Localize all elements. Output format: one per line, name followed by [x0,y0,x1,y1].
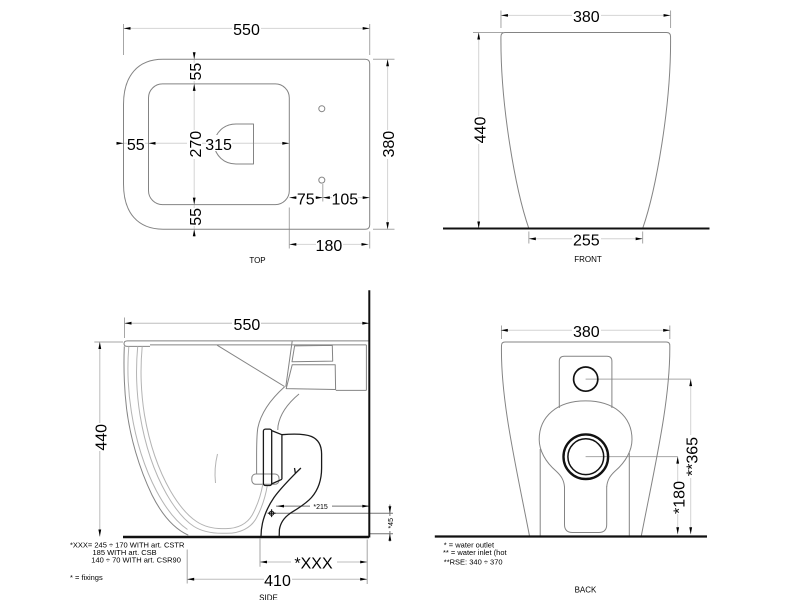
svg-text:55: 55 [188,208,205,226]
svg-text:270: 270 [188,131,205,158]
svg-text:BACK: BACK [575,586,597,595]
svg-text:105: 105 [331,191,358,208]
svg-text:*XXX: *XXX [294,556,333,573]
svg-text:**365: **365 [684,437,701,476]
svg-text:550: 550 [234,317,261,334]
svg-text:SIDE: SIDE [259,594,278,600]
svg-text:550: 550 [233,22,260,39]
svg-text:*45: *45 [388,518,395,529]
svg-text:**RSE: 340 ÷ 370: **RSE: 340 ÷ 370 [444,558,503,567]
svg-text:410: 410 [264,573,291,590]
svg-text:55: 55 [188,63,205,81]
svg-text:* = fixings: * = fixings [70,573,103,582]
svg-text:440: 440 [472,117,489,144]
svg-text:FRONT: FRONT [574,255,602,264]
svg-text:380: 380 [573,324,600,341]
svg-text:380: 380 [573,9,600,26]
svg-text:440: 440 [93,424,110,451]
svg-text:*180: *180 [671,481,688,514]
svg-text:380: 380 [381,131,398,158]
svg-text:TOP: TOP [249,256,265,265]
svg-text:140 ÷ 70 WITH art. CSR90: 140 ÷ 70 WITH art. CSR90 [91,556,181,565]
svg-text:55: 55 [127,137,145,154]
svg-text:315: 315 [205,137,232,154]
svg-text:255: 255 [573,233,600,250]
svg-text:180: 180 [316,238,343,255]
svg-text:*215: *215 [313,504,328,511]
svg-text:** = water inlet (hot: ** = water inlet (hot [443,548,507,557]
svg-text:75: 75 [297,191,315,208]
